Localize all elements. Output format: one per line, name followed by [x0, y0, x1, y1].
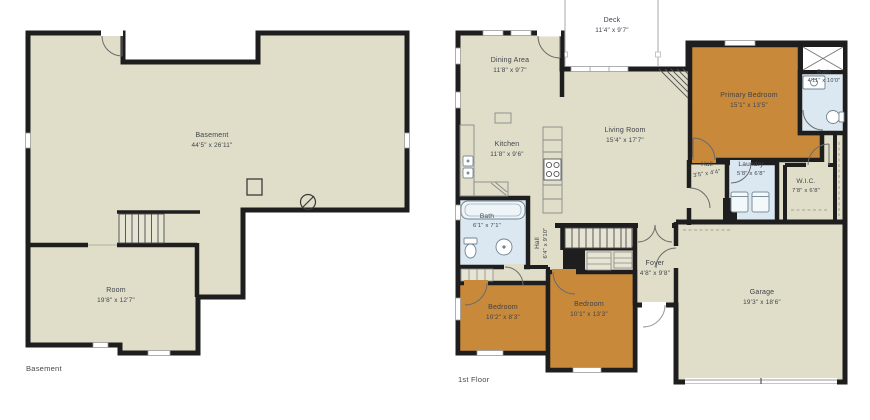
sink-icon — [496, 239, 512, 255]
toilet-icon — [464, 238, 477, 258]
stairs — [565, 228, 632, 248]
basement-plan-title: Basement — [26, 364, 62, 373]
basement-drawing — [0, 0, 435, 420]
first-floor-plan: Deck 11'4" x 9'7" Dining Area 11'8" x 9'… — [435, 0, 870, 420]
basement-exterior-walls — [28, 33, 407, 353]
bathtub-icon — [461, 201, 525, 219]
bedroom-center-floor — [548, 272, 635, 370]
toilet-icon — [827, 111, 845, 124]
basement-stairs — [119, 214, 164, 243]
bedroom-left-floor — [458, 283, 548, 353]
first-floor-plan-title: 1st Floor — [458, 375, 489, 384]
basement-plan: Basement 44'5" x 26'11" Room 19'8" x 12'… — [0, 0, 435, 420]
floorplan-image: Basement 44'5" x 26'11" Room 19'8" x 12'… — [0, 0, 870, 420]
deck-outline — [563, 0, 661, 66]
stove-icon — [544, 159, 561, 180]
first-floor-drawing — [435, 0, 870, 420]
vanity-sink-icon — [803, 76, 825, 89]
shower-icon — [801, 45, 845, 72]
garage-door — [685, 378, 837, 388]
